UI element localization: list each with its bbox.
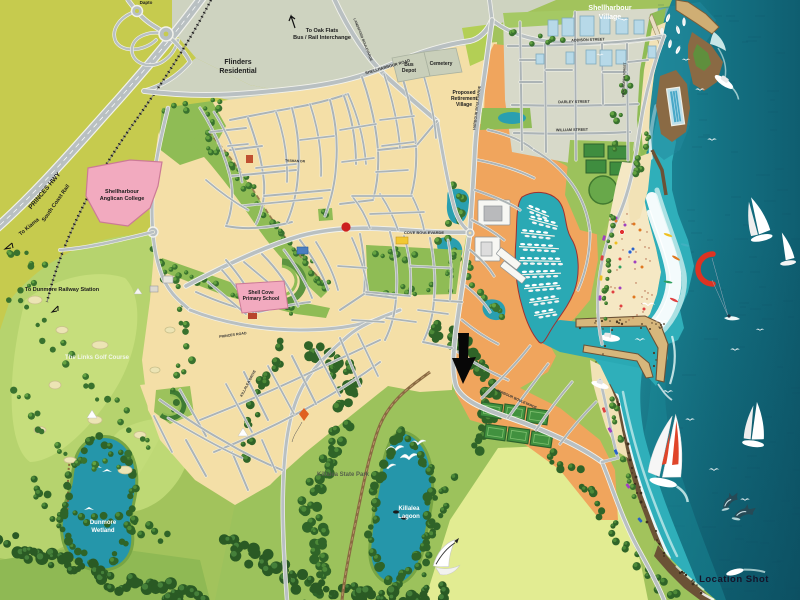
svg-text:DARLEY STREET: DARLEY STREET — [558, 100, 590, 105]
svg-text:Flinders: Flinders — [224, 59, 251, 66]
svg-text:Shellharbour: Shellharbour — [105, 189, 140, 195]
svg-text:To Oak Flats: To Oak Flats — [306, 28, 339, 34]
svg-text:Primary School: Primary School — [243, 296, 280, 302]
svg-text:Location Shot: Location Shot — [699, 574, 769, 585]
svg-text:Dapto: Dapto — [140, 0, 153, 5]
svg-text:The Links Golf Course: The Links Golf Course — [65, 355, 130, 361]
svg-text:Dunmore: Dunmore — [90, 520, 117, 526]
svg-text:Shellharbour: Shellharbour — [588, 5, 631, 12]
svg-text:Killalea: Killalea — [398, 506, 420, 512]
svg-text:Cemetery: Cemetery — [430, 61, 453, 67]
svg-text:COVE BOULEVARDE: COVE BOULEVARDE — [404, 230, 444, 235]
svg-text:Killalea State Park: Killalea State Park — [317, 472, 370, 478]
svg-text:Anglican College: Anglican College — [100, 196, 145, 202]
svg-text:Lagoon: Lagoon — [398, 514, 420, 520]
svg-text:Village: Village — [599, 14, 622, 21]
svg-text:To Dunmore Railway Station: To Dunmore Railway Station — [25, 287, 100, 293]
svg-text:Wetland: Wetland — [91, 528, 115, 534]
svg-text:WILLIAM STREET: WILLIAM STREET — [556, 128, 589, 133]
svg-text:Bus / Rail Interchange: Bus / Rail Interchange — [293, 35, 351, 41]
svg-text:Residential: Residential — [219, 68, 256, 75]
svg-text:Depot: Depot — [402, 68, 417, 74]
svg-text:Village: Village — [456, 102, 472, 108]
